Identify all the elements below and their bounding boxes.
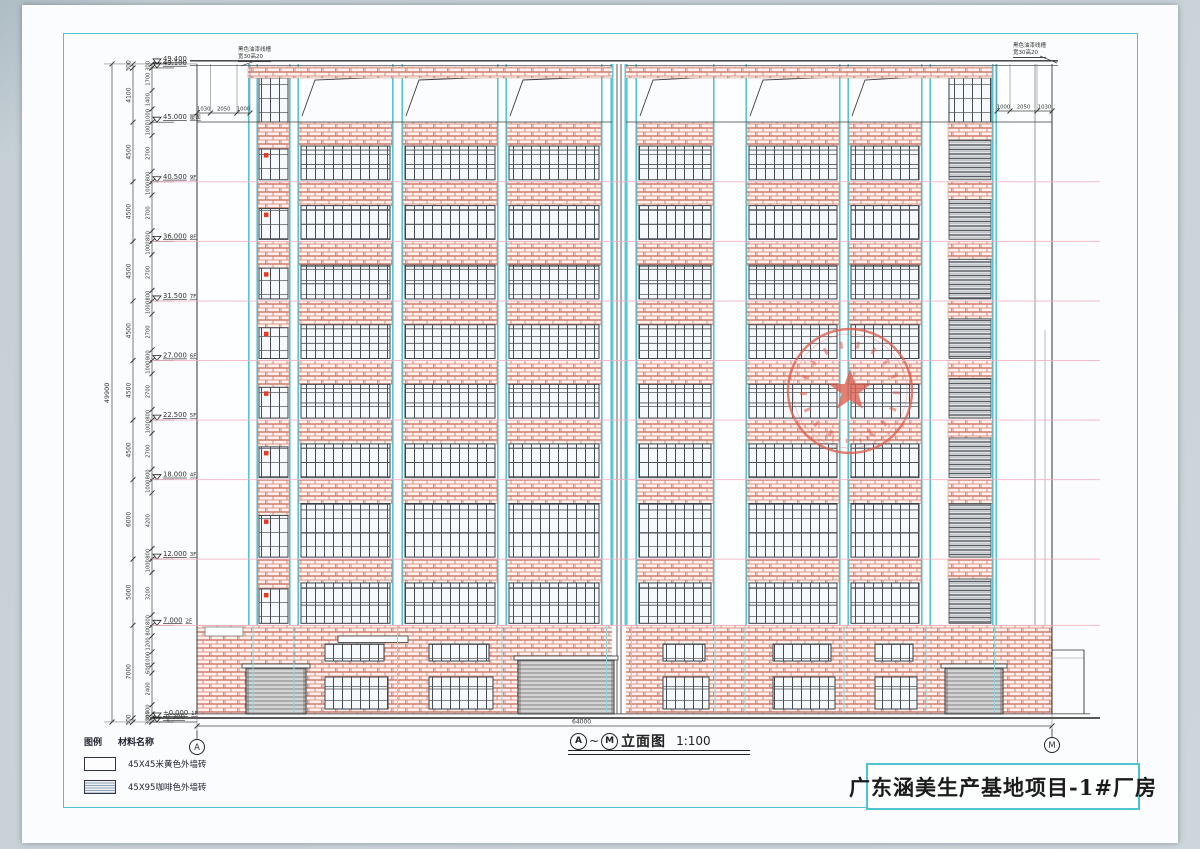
window-tag-marker: [264, 593, 269, 598]
brick-spandrel-band: [747, 480, 839, 504]
wall-recess: [205, 627, 243, 636]
dim-value-top: 1000: [997, 105, 1011, 111]
brick-spandrel-band: [258, 480, 289, 516]
brick-spandrel-band: [299, 301, 392, 325]
brick-spandrel-band: [299, 480, 392, 504]
brick-spandrel-band: [948, 182, 992, 200]
annotation-text: 宽30高20: [238, 54, 271, 61]
dim-value-inner: 800: [146, 410, 152, 420]
seal-character-mark: [857, 342, 858, 349]
brick-spandrel-band: [747, 559, 839, 583]
window-grid: [259, 515, 288, 557]
window-grid: [749, 583, 837, 623]
ground-transom-window: [663, 644, 705, 661]
dim-value-inner: 1000: [146, 241, 152, 254]
window-grid: [259, 149, 288, 180]
dim-value-inner: 2700: [146, 385, 152, 398]
brick-spandrel-band: [258, 559, 289, 589]
window-grid: [405, 265, 495, 299]
dim-value-outer: 300: [126, 60, 133, 72]
brick-spandrel-band: [747, 420, 839, 444]
ground-window: [325, 677, 388, 709]
brick-spandrel-band: [403, 361, 497, 385]
brick-spandrel-band: [849, 241, 921, 265]
window-grid: [639, 265, 711, 299]
roller-shutter-door: [246, 668, 306, 714]
grid-bubble-label: M: [1048, 741, 1055, 751]
dim-value-inner: 800: [146, 350, 152, 360]
window-grid: [639, 325, 711, 359]
window-grid: [749, 444, 837, 478]
brick-spandrel-band: [948, 241, 992, 259]
window-grid: [405, 325, 495, 359]
gutter-annotation-left: 黑色油漆线槽 宽30高20: [238, 47, 271, 62]
elevation-drawing: 3004100450045004500450045004500600050007…: [0, 0, 1200, 849]
door-lintel: [941, 664, 1007, 668]
legend-header-symbol: 图例: [84, 735, 118, 748]
dim-value-inner: 2700: [146, 445, 152, 458]
brick-spandrel-band: [403, 420, 497, 444]
legend-swatch-hatch: [84, 780, 116, 794]
brick-spandrel-band: [637, 420, 713, 444]
brick-spandrel-band: [637, 122, 713, 146]
dim-value-inner: 1000: [146, 480, 152, 493]
seal-character-mark: [891, 375, 898, 377]
dim-value-inner: 800: [146, 626, 152, 636]
seal-character-mark: [802, 376, 809, 378]
dim-value-inner: 1000: [146, 559, 152, 572]
brick-spandrel-band: [948, 420, 992, 438]
ground-window: [663, 677, 709, 709]
dim-value-inner: 1000: [146, 652, 152, 665]
dim-value-inner: 1000: [146, 122, 152, 135]
ground-window: [429, 677, 493, 709]
brick-spandrel-band: [258, 361, 289, 388]
dim-value-outer: 6000: [126, 512, 133, 527]
dim-value-inner: 300: [146, 61, 152, 71]
level-label: 22.5005F: [163, 411, 196, 419]
brick-spandrel-band: [507, 361, 601, 385]
pilaster: [601, 64, 612, 625]
dim-value-inner: 800: [146, 615, 152, 625]
drawing-scale: 1:100: [676, 734, 711, 748]
dim-value-inner: 2700: [146, 147, 152, 160]
dim-value-inner: 800: [146, 549, 152, 559]
dim-value-inner: 1000: [146, 361, 152, 374]
dim-value-inner: 1200: [146, 637, 152, 650]
window-grid: [509, 384, 599, 418]
window-grid: [749, 325, 837, 359]
level-label: 36.0008F: [163, 232, 196, 240]
brick-spandrel-band: [258, 182, 289, 209]
brick-spandrel-band: [849, 559, 921, 583]
louver-panel: [949, 200, 991, 240]
window-grid: [749, 504, 837, 558]
level-label: 18.0004F: [163, 471, 196, 479]
brick-spandrel-band: [637, 559, 713, 583]
level-label: -0.300: [163, 713, 185, 721]
window-grid: [949, 78, 991, 122]
dim-value-inner: 600: [146, 664, 152, 674]
dim-value-inner: 1000: [146, 420, 152, 433]
window-grid: [851, 504, 919, 558]
window-grid: [639, 206, 711, 240]
materials-legend: 图例 材料名称 45X45米黄色外墙砖 45X95咖啡色外墙砖: [84, 735, 206, 794]
roof-slope-line: [640, 77, 710, 116]
dim-value-outer: 300: [126, 714, 133, 726]
window-grid: [259, 268, 288, 299]
brick-spandrel-band: [637, 480, 713, 504]
brick-spandrel-band: [948, 122, 992, 140]
dim-value-inner: 800: [146, 469, 152, 479]
louver-panel: [949, 504, 991, 558]
roof-slope-line: [302, 77, 389, 116]
dim-value-inner: 1000: [146, 182, 152, 195]
roof-slope-line: [406, 77, 494, 116]
legend-header-name: 材料名称: [118, 735, 154, 748]
brick-spandrel-band: [637, 241, 713, 265]
plain-wall-strip: [931, 64, 948, 625]
brick-spandrel-band: [507, 301, 601, 325]
brick-spandrel-band: [637, 301, 713, 325]
louver-panel: [949, 319, 991, 359]
brick-spandrel-band: [747, 301, 839, 325]
brick-spandrel-band: [849, 182, 921, 206]
brick-spandrel-band: [299, 559, 392, 583]
roof-slope-line: [852, 77, 918, 116]
dim-value-inner: 3200: [146, 587, 152, 600]
brick-spandrel-band: [258, 420, 289, 447]
window-grid: [405, 206, 495, 240]
brick-spandrel-band: [507, 420, 601, 444]
brick-spandrel-band: [403, 559, 497, 583]
level-label: 12.0003F: [163, 550, 196, 558]
window-grid: [301, 265, 390, 299]
brick-spandrel-band: [258, 241, 289, 268]
brick-spandrel-band: [747, 122, 839, 146]
window-tag-marker: [264, 153, 269, 158]
end-wall-left: [197, 64, 248, 625]
dim-value-inner: 800: [146, 172, 152, 182]
dim-value-outer: 4100: [126, 87, 133, 102]
brick-spandrel-band: [258, 122, 289, 149]
ground-transom-window: [875, 644, 913, 661]
dim-value-inner: 2700: [146, 325, 152, 338]
window-grid: [851, 444, 919, 478]
window-grid: [639, 504, 711, 558]
level-label: 31.5007F: [163, 292, 196, 300]
window-tag-marker: [264, 519, 269, 524]
door-lintel: [514, 656, 618, 660]
level-label: 49.100: [163, 59, 187, 67]
window-grid: [301, 504, 390, 558]
window-grid: [301, 146, 390, 180]
brick-spandrel-band: [403, 241, 497, 265]
legend-item: 45X95咖啡色外墙砖: [84, 780, 206, 794]
dim-value-outer: 4500: [126, 204, 133, 219]
caption-tilde: ~: [589, 734, 599, 748]
window-grid: [749, 206, 837, 240]
dim-value-inner: 300: [146, 715, 152, 725]
brick-spandrel-band: [299, 361, 392, 385]
brick-spandrel-band: [299, 241, 392, 265]
roller-shutter-door: [518, 660, 614, 714]
dim-value-inner: 800: [146, 291, 152, 301]
brick-spandrel-band: [403, 301, 497, 325]
brick-spandrel-band: [299, 182, 392, 206]
window-grid: [509, 583, 599, 623]
brick-spandrel-band: [299, 122, 392, 146]
window-grid: [851, 583, 919, 623]
louver-panel: [949, 259, 991, 299]
brick-spandrel-band: [507, 122, 601, 146]
brick-spandrel-band: [403, 122, 497, 146]
dim-value-inner: 1000: [146, 301, 152, 314]
brick-spandrel-band: [747, 241, 839, 265]
brick-spandrel-band: [849, 480, 921, 504]
brick-spandrel-band: [507, 182, 601, 206]
legend-swatch-plain: [84, 757, 116, 771]
louver-panel: [949, 579, 991, 623]
dim-value-outer: 4500: [126, 382, 133, 397]
louver-panel: [949, 378, 991, 418]
window-grid: [259, 209, 288, 240]
window-grid: [639, 384, 711, 418]
dim-value-top: 2050: [217, 107, 231, 113]
roof-slope-line: [750, 77, 836, 116]
brick-spandrel-band: [948, 361, 992, 379]
window-grid: [259, 78, 288, 122]
window-grid: [851, 265, 919, 299]
window-grid: [405, 384, 495, 418]
drawing-name: 立面图: [621, 731, 666, 751]
annotation-text: 黑色油漆线槽: [238, 47, 271, 54]
dim-value-top: 2050: [1017, 105, 1031, 111]
window-grid: [509, 146, 599, 180]
grid-bubble-m-caption: M: [601, 733, 618, 750]
seal-number-mark: [860, 438, 861, 442]
window-grid: [639, 583, 711, 623]
drawing-caption: A ~ M 立面图 1:100: [570, 731, 711, 751]
brick-spandrel-band: [948, 480, 992, 504]
window-grid: [259, 589, 288, 623]
pilaster: [392, 64, 403, 625]
dim-value-top: 1030: [1038, 105, 1052, 111]
expansion-joint: [612, 64, 626, 714]
brick-spandrel-band: [849, 122, 921, 146]
brick-spandrel-band: [507, 241, 601, 265]
legend-item: 45X45米黄色外墙砖: [84, 757, 206, 771]
window-grid: [301, 325, 390, 359]
window-grid: [639, 146, 711, 180]
brick-spandrel-band: [258, 301, 289, 328]
dim-value-inner: 2400: [146, 682, 152, 695]
window-grid: [301, 583, 390, 623]
title-block: 广东涵美生产基地项目-1#厂房: [866, 763, 1140, 810]
grid-bubble-a-caption: A: [570, 733, 587, 750]
pilaster: [713, 64, 747, 625]
dim-value-outer: 5000: [126, 584, 133, 599]
dim-value-inner: 2700: [146, 206, 152, 219]
level-label: 40.5009F: [163, 173, 196, 181]
window-grid: [405, 444, 495, 478]
window-tag-marker: [264, 213, 269, 218]
window-grid: [301, 206, 390, 240]
dim-value-inner: 800: [146, 231, 152, 241]
window-grid: [405, 146, 495, 180]
window-grid: [301, 384, 390, 418]
ground-window: [875, 677, 917, 709]
brick-spandrel-band: [637, 361, 713, 385]
legend-item-label: 45X95咖啡色外墙砖: [128, 781, 206, 793]
window-grid: [405, 504, 495, 558]
end-wall-right: [997, 64, 1052, 625]
window-grid: [639, 444, 711, 478]
window-tag-marker: [264, 391, 269, 396]
window-grid: [749, 265, 837, 299]
dim-value-inner: 1700: [146, 73, 152, 86]
dim-value-outer: 4500: [126, 144, 133, 159]
ground-transom-window: [429, 644, 489, 661]
door-lintel: [242, 664, 310, 668]
brick-spandrel-band: [637, 182, 713, 206]
dim-value-inner: 1400: [146, 93, 152, 106]
louver-panel: [949, 140, 991, 180]
seal-number-mark: [839, 438, 840, 442]
louver-panel: [949, 438, 991, 478]
window-grid: [749, 146, 837, 180]
brick-spandrel-band: [403, 182, 497, 206]
dim-value-inner: 2700: [146, 266, 152, 279]
brick-spandrel-band: [948, 301, 992, 319]
project-title: 广东涵美生产基地项目-1#厂房: [849, 772, 1157, 802]
pilaster: [626, 64, 637, 625]
window-grid: [301, 444, 390, 478]
dim-value-inner: 4200: [146, 514, 152, 527]
window-grid: [259, 447, 288, 478]
brick-spandrel-band: [507, 559, 601, 583]
dim-value-top: 1030: [197, 107, 211, 113]
level-label: 7.0002F: [163, 616, 192, 624]
window-grid: [509, 444, 599, 478]
roof-slope-line: [510, 77, 598, 116]
dim-value-outer: 4500: [126, 323, 133, 338]
ground-transom-window: [773, 644, 831, 661]
overall-dim-value: 64000: [572, 719, 591, 726]
dim-value-inner: 1000: [146, 109, 152, 122]
window-grid: [509, 504, 599, 558]
window-grid: [509, 325, 599, 359]
gutter-annotation-right: 黑色油漆线槽 宽30高20: [1013, 43, 1046, 58]
dim-value-outer: 4500: [126, 442, 133, 457]
brick-spandrel-band: [849, 301, 921, 325]
annotation-text: 宽30高20: [1013, 50, 1046, 57]
annotation-text: 黑色油漆线槽: [1013, 43, 1046, 50]
caption-underline: [568, 750, 750, 755]
brick-spandrel-band: [299, 420, 392, 444]
ground-transom-window: [325, 644, 384, 661]
window-grid: [509, 265, 599, 299]
window-tag-marker: [264, 272, 269, 277]
window-grid: [405, 583, 495, 623]
dim-value-total: 49900: [103, 383, 111, 404]
legend-item-label: 45X45米黄色外墙砖: [128, 758, 206, 770]
dim-value-top: 1000: [237, 107, 251, 113]
level-label: 27.0006F: [163, 352, 196, 360]
brick-spandrel-band: [747, 182, 839, 206]
window-grid: [851, 146, 919, 180]
window-grid: [259, 387, 288, 418]
brick-spandrel-band: [948, 559, 992, 579]
dim-value-outer: 4500: [126, 263, 133, 278]
window-tag-marker: [264, 451, 269, 456]
window-tag-marker: [264, 332, 269, 337]
scanned-drawing-sheet: { "title_block": {"text": "广东涵美生产基地项目-1#…: [0, 0, 1200, 849]
ground-window: [773, 677, 835, 709]
brick-spandrel-band: [403, 480, 497, 504]
seal-character-mark: [841, 342, 842, 349]
window-grid: [509, 206, 599, 240]
window-grid: [259, 328, 288, 359]
brick-spandrel-band: [507, 480, 601, 504]
dim-value-outer: 7000: [126, 664, 133, 679]
window-grid: [851, 206, 919, 240]
